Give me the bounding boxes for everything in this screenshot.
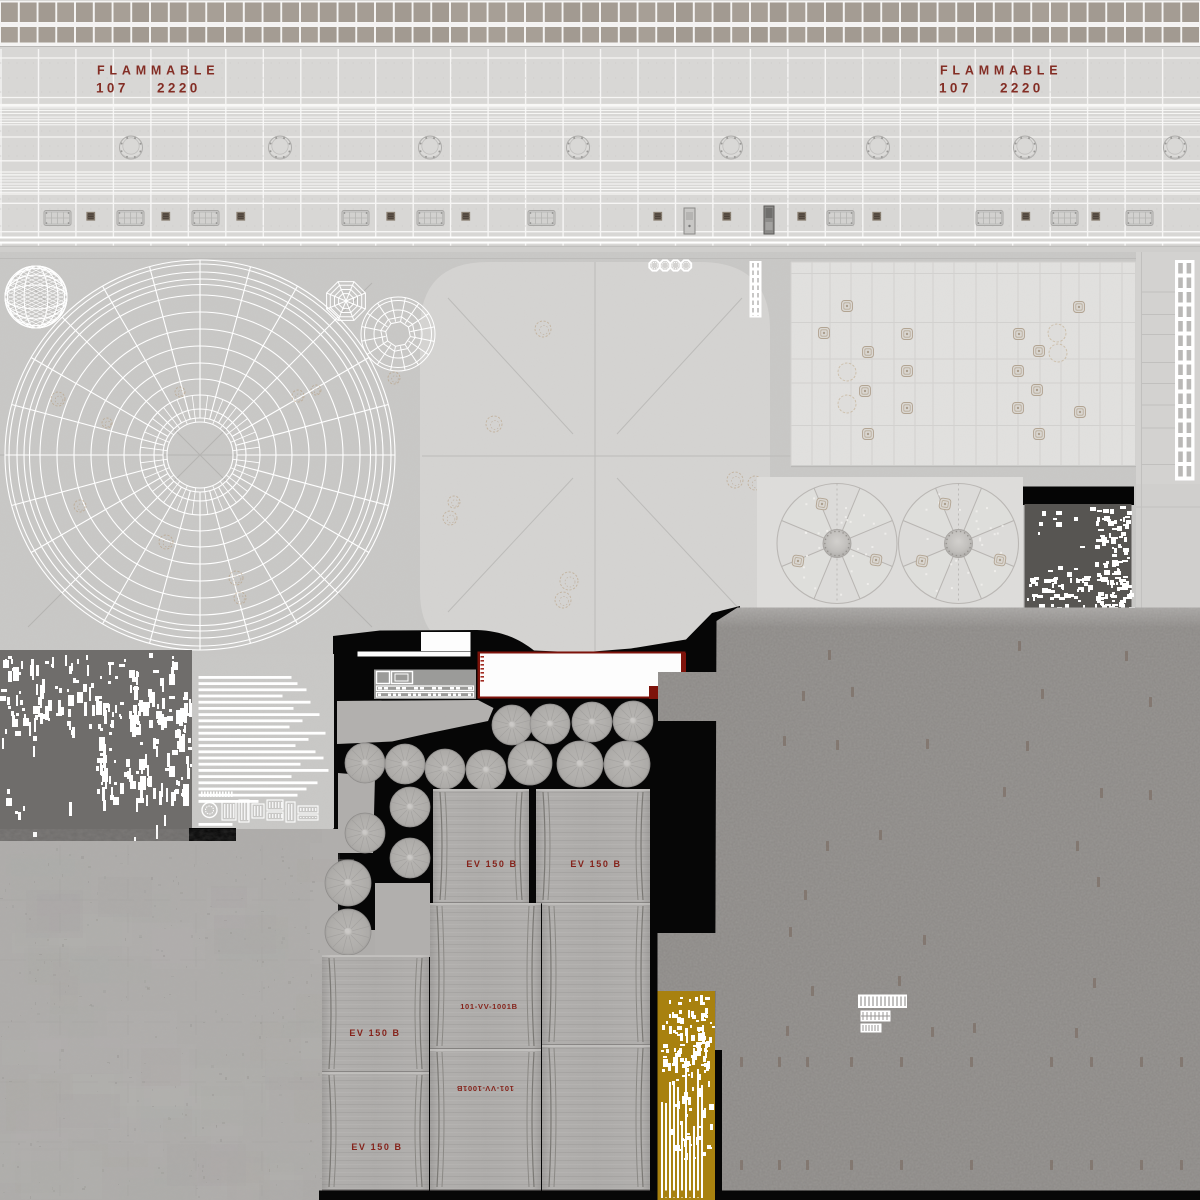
svg-text:FLAMMABLE: FLAMMABLE [97, 64, 219, 78]
svg-text:107: 107 [96, 81, 129, 96]
svg-text:2220: 2220 [1000, 81, 1044, 96]
svg-text:EV 150 B: EV 150 B [466, 859, 517, 869]
svg-text:101-VV-1001B: 101-VV-1001B [456, 1084, 514, 1093]
svg-text:EV 150 B: EV 150 B [351, 1142, 402, 1152]
svg-text:EV 150 B: EV 150 B [349, 1028, 400, 1038]
svg-text:2220: 2220 [157, 81, 201, 96]
svg-text:101-VV-1001B: 101-VV-1001B [460, 1002, 518, 1011]
svg-text:EV 150 B: EV 150 B [570, 859, 621, 869]
svg-text:107: 107 [939, 81, 972, 96]
svg-text:FLAMMABLE: FLAMMABLE [940, 64, 1062, 78]
